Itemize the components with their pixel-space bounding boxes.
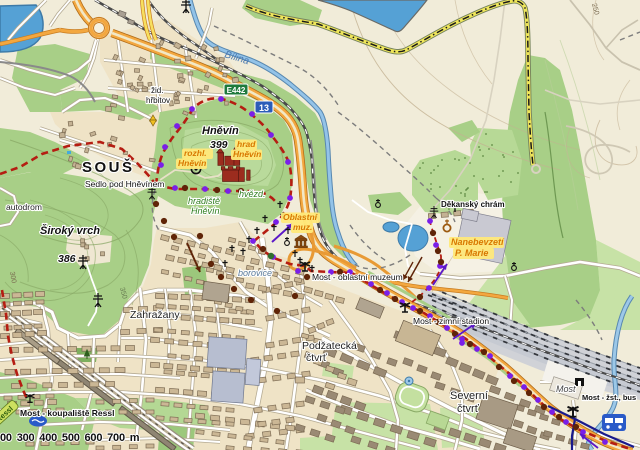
svg-text:čtvrť: čtvrť	[457, 403, 480, 415]
svg-text:žid.: žid.	[151, 86, 163, 95]
svg-text:hřbitov: hřbitov	[146, 96, 170, 105]
svg-text:čtvrť: čtvrť	[306, 352, 328, 364]
svg-text:00 300 400 500 600 700 m: 00 300 400 500 600 700 m	[0, 432, 140, 444]
svg-text:399: 399	[210, 139, 228, 151]
svg-text:Široký vrch: Široký vrch	[40, 224, 100, 237]
svg-text:Sedlo pod Hněvínem: Sedlo pod Hněvínem	[85, 179, 164, 189]
svg-text:Most - žst., bus: Most - žst., bus	[582, 393, 636, 402]
svg-text:E442: E442	[227, 86, 246, 95]
svg-text:Hněvín: Hněvín	[202, 125, 239, 137]
svg-text:rozhl.: rozhl.	[184, 148, 207, 158]
svg-text:borovice: borovice	[238, 268, 272, 278]
svg-text:Most: Most	[556, 384, 576, 394]
svg-text:hvězd.: hvězd.	[239, 189, 266, 199]
svg-text:Oblastní: Oblastní	[283, 212, 319, 222]
svg-text:Hněvín: Hněvín	[178, 158, 206, 168]
svg-text:hrad: hrad	[237, 139, 256, 149]
svg-text:muz.: muz.	[293, 222, 312, 232]
svg-text:Most - koupaliště Ressl: Most - koupaliště Ressl	[20, 408, 114, 418]
svg-text:Zahražany: Zahražany	[130, 309, 180, 321]
svg-text:13: 13	[259, 103, 269, 113]
svg-text:Hněvín: Hněvín	[233, 149, 261, 159]
svg-text:Most - zimní stadion: Most - zimní stadion	[413, 316, 489, 326]
svg-text:P. Marie: P. Marie	[455, 248, 488, 258]
svg-text:Nanebevzetí: Nanebevzetí	[451, 237, 505, 247]
svg-text:SOUŠ: SOUŠ	[82, 158, 135, 176]
svg-text:autodrom: autodrom	[6, 202, 42, 212]
svg-text:hradiště: hradiště	[188, 196, 220, 206]
svg-text:Severní: Severní	[450, 390, 488, 402]
svg-text:386: 386	[58, 253, 76, 265]
svg-text:Most - oblastní muzeum: Most - oblastní muzeum	[312, 272, 403, 282]
svg-text:Hněvín: Hněvín	[191, 206, 220, 216]
svg-text:Děkanský chrám: Děkanský chrám	[441, 200, 505, 209]
svg-text:Podžatecká: Podžatecká	[302, 340, 357, 352]
